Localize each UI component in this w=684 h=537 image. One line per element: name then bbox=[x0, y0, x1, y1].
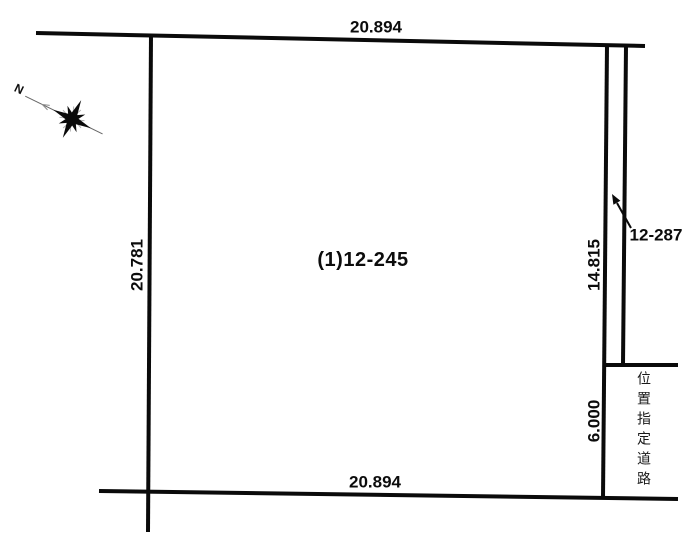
boundary-top-line bbox=[36, 33, 645, 46]
dimension-road-width: 6.000 bbox=[586, 400, 603, 443]
boundary-bottom-line bbox=[99, 491, 678, 499]
compass-star-long-points bbox=[44, 91, 100, 147]
parcel-label: (1)12-245 bbox=[317, 250, 408, 270]
boundary-left-line bbox=[148, 34, 151, 532]
survey-diagram: 20.894 20.781 14.815 6.000 20.894 (1)12-… bbox=[0, 0, 684, 537]
boundary-right-inner-line bbox=[623, 46, 626, 364]
dimension-right: 14.815 bbox=[586, 239, 603, 291]
compass-rose-icon bbox=[16, 77, 112, 152]
dimension-top: 20.894 bbox=[350, 19, 402, 36]
neighbor-leader-arrow bbox=[612, 194, 631, 228]
boundary-right-outer-line bbox=[603, 45, 607, 498]
dimension-bottom: 20.894 bbox=[349, 474, 401, 491]
leader-arrowhead-icon bbox=[612, 194, 620, 205]
road-designation-label: 位置指定道路 bbox=[634, 371, 654, 491]
neighbor-parcel-label: 12-287 bbox=[630, 227, 683, 244]
dimension-left: 20.781 bbox=[129, 239, 146, 291]
